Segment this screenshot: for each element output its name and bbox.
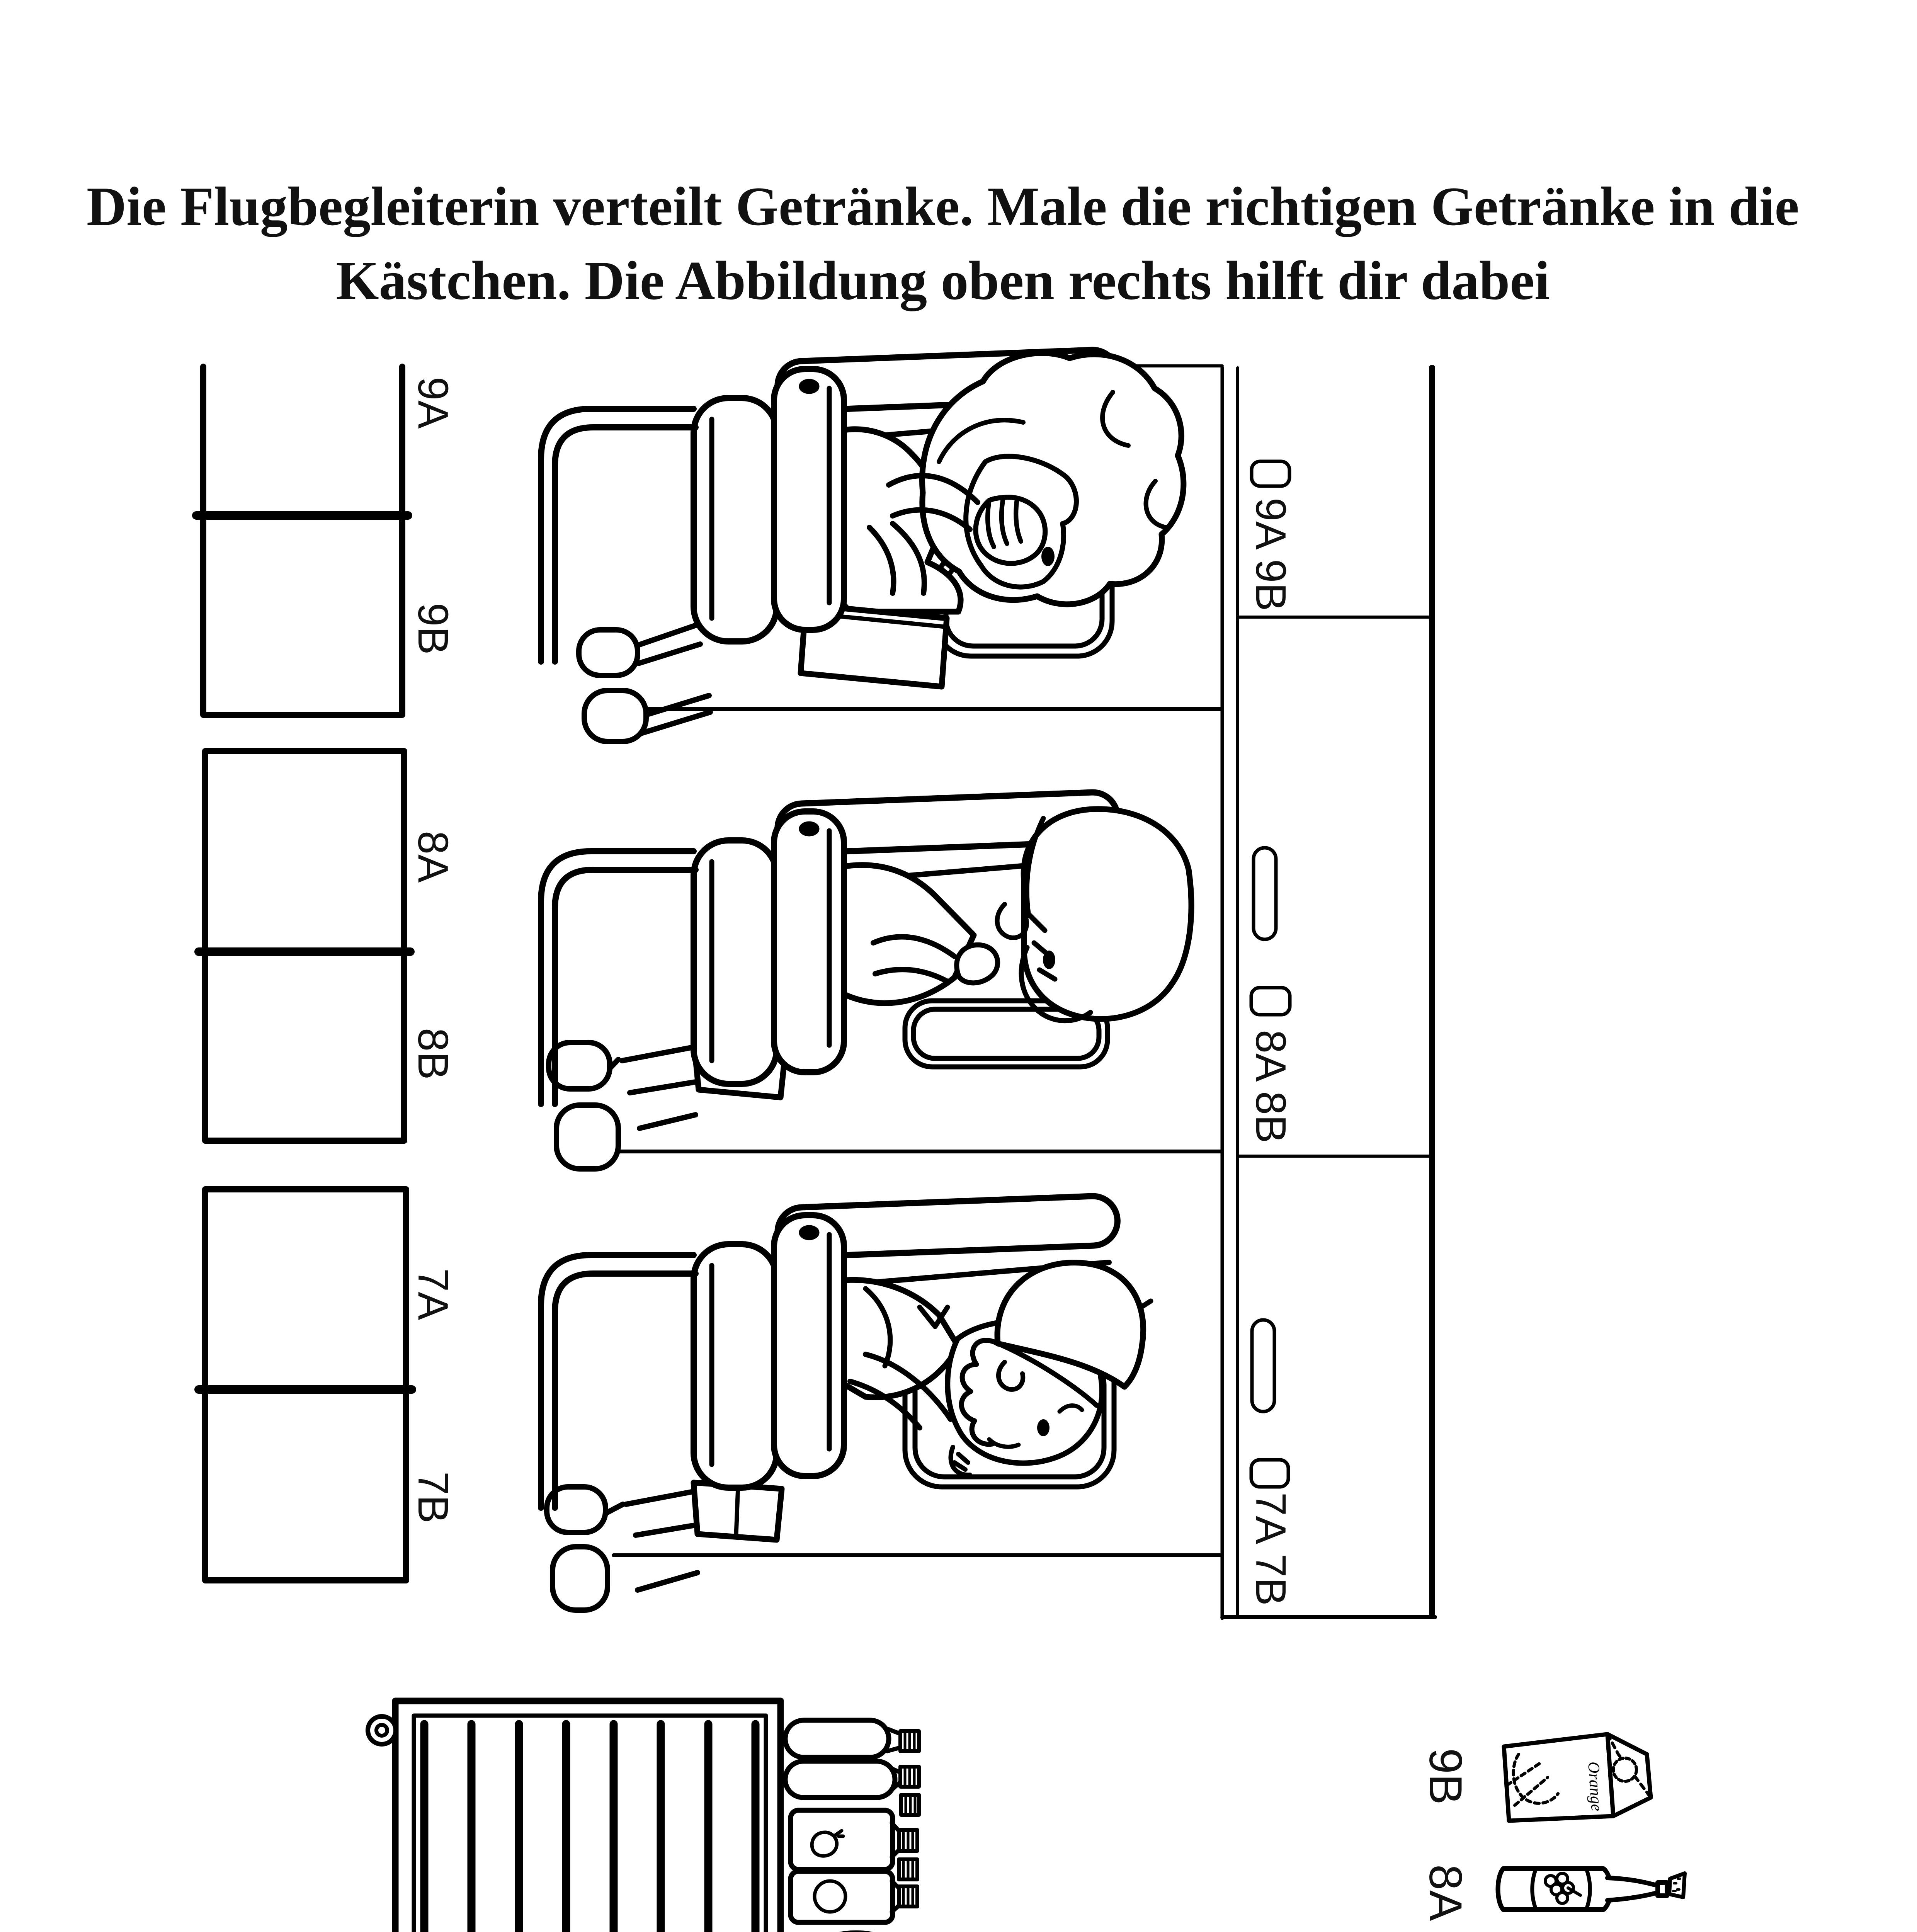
svg-text:9B: 9B bbox=[1420, 1748, 1471, 1805]
svg-text:8A 8B: 8A 8B bbox=[1247, 1030, 1294, 1143]
svg-text:Die Flugbegleiterin verteilt G: Die Flugbegleiterin verteilt Getränke. M… bbox=[87, 176, 1799, 237]
svg-text:7A 7B: 7A 7B bbox=[1247, 1492, 1294, 1606]
svg-text:7B: 7B bbox=[409, 1471, 457, 1524]
svg-text:8A: 8A bbox=[1420, 1864, 1471, 1921]
svg-text:Orange: Orange bbox=[1584, 1761, 1606, 1811]
svg-text:9A 9B: 9A 9B bbox=[1247, 498, 1294, 611]
svg-text:9A: 9A bbox=[409, 377, 457, 429]
svg-text:7A: 7A bbox=[409, 1268, 457, 1320]
svg-text:9B: 9B bbox=[409, 603, 457, 655]
svg-text:8A: 8A bbox=[409, 831, 457, 883]
svg-text:8B: 8B bbox=[409, 1028, 457, 1080]
svg-text:Kästchen. Die Abbildung oben r: Kästchen. Die Abbildung oben rechts hilf… bbox=[336, 250, 1550, 311]
